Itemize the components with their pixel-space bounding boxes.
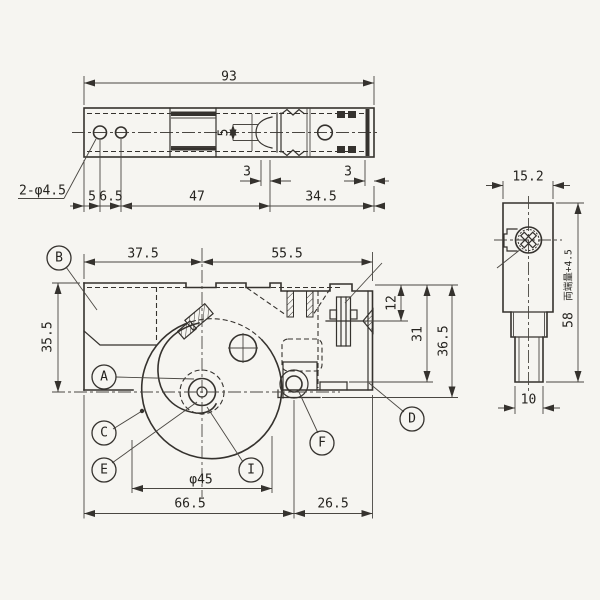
spring-contact-bottom — [282, 150, 304, 156]
top-view: 93 5 3 3 — [18, 70, 389, 213]
technical-drawing-sheet: 93 5 3 3 — [0, 0, 600, 600]
dim-47: 47 — [189, 190, 205, 205]
dim-37-5: 37.5 — [127, 247, 158, 262]
balloon-b: B — [55, 251, 63, 266]
technical-drawing: 93 5 3 3 — [0, 0, 600, 600]
side-view: 15.2 58 両端量+4.5 10 — [486, 170, 584, 415]
dim-26-5: 26.5 — [317, 497, 348, 512]
dim-93: 93 — [221, 70, 237, 85]
balloon-e: E — [100, 463, 108, 478]
balloon-c: C — [100, 426, 108, 441]
dim-5: 5 — [88, 190, 96, 205]
dim-10: 10 — [521, 393, 537, 408]
dim-58: 58 — [562, 312, 577, 328]
dim-5-vertical: 5 — [217, 129, 232, 137]
front-body-outline — [84, 283, 373, 390]
front-view: B A C E I F D 37.5 — [41, 246, 459, 519]
dim-34-5: 34.5 — [305, 190, 336, 205]
dim-66-5: 66.5 — [174, 497, 205, 512]
dim-6-5: 6.5 — [99, 190, 122, 205]
dim-15-2: 15.2 — [512, 170, 543, 185]
dim-31: 31 — [411, 326, 426, 342]
terminal-slot-1 — [287, 291, 294, 317]
spring-contact-top — [282, 110, 304, 116]
side-view-geometry — [494, 196, 562, 392]
top-view-dimensions: 93 5 3 3 — [18, 70, 389, 213]
dim-phi45: φ45 — [189, 473, 212, 488]
holes-callout: 2-φ4.5 — [19, 184, 66, 199]
balloon-a: A — [100, 370, 108, 385]
terminal-leader — [345, 263, 382, 303]
screw-leader — [497, 249, 521, 268]
terminal-slot-2 — [307, 291, 314, 317]
balloon-d: D — [408, 412, 416, 427]
dim-3-right: 3 — [344, 165, 352, 180]
dim-55-5: 55.5 — [271, 247, 302, 262]
dim-35-5: 35.5 — [41, 321, 56, 352]
dim-58-note: 両端量+4.5 — [563, 249, 575, 300]
contact-strip-top — [171, 112, 216, 117]
balloon-i: I — [247, 463, 255, 478]
end-plate — [366, 109, 370, 156]
dim-12: 12 — [385, 295, 400, 311]
dim-36-5: 36.5 — [437, 325, 452, 356]
side-view-dimensions: 15.2 58 両端量+4.5 10 — [486, 170, 584, 415]
dim-3-left: 3 — [243, 165, 251, 180]
pocket-edge — [84, 331, 156, 345]
balloon-f: F — [318, 436, 326, 451]
